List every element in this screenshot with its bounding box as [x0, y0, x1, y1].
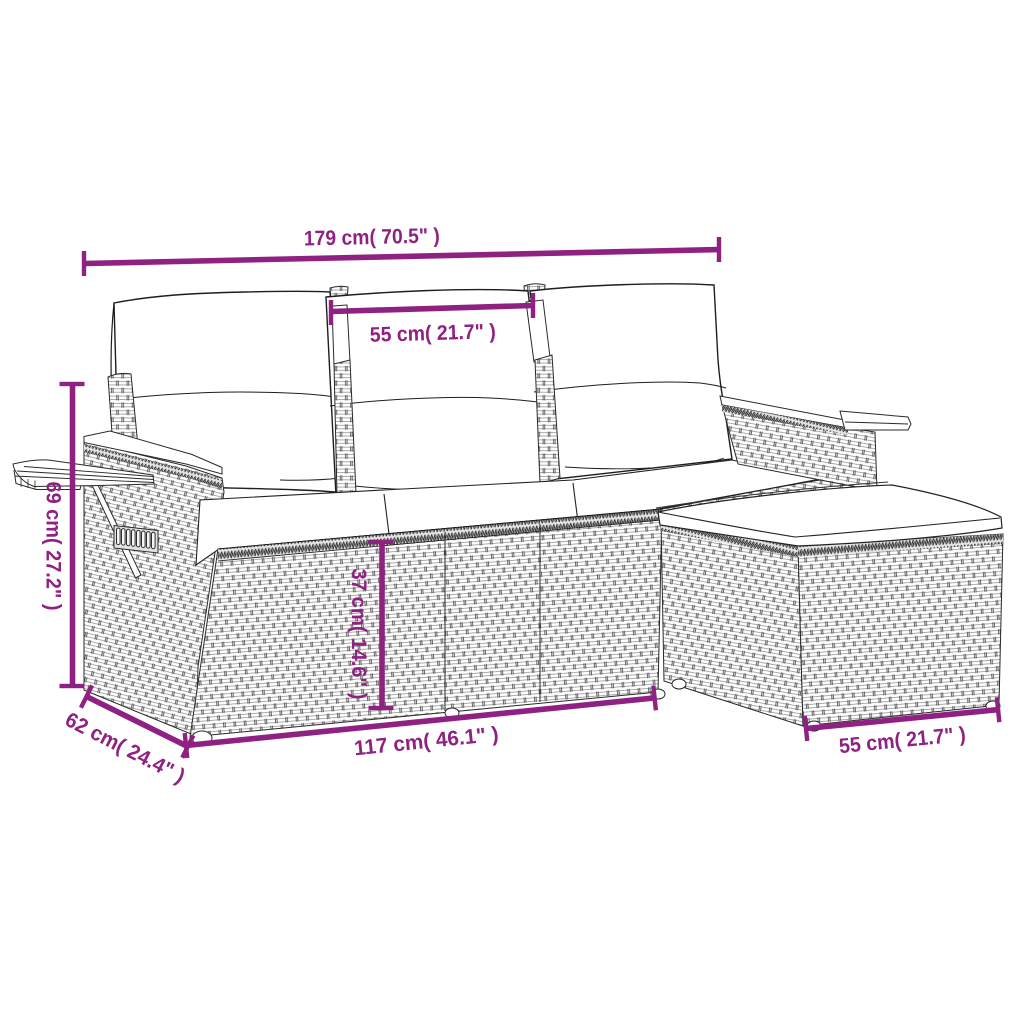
svg-text:55 cm( 21.7" ): 55 cm( 21.7" ): [369, 320, 496, 347]
svg-text:179 cm( 70.5" ): 179 cm( 70.5" ): [304, 224, 440, 250]
svg-text:37 cm( 14.6" ): 37 cm( 14.6" ): [347, 569, 370, 700]
svg-text:69 cm( 27.2" ): 69 cm( 27.2" ): [42, 482, 65, 611]
